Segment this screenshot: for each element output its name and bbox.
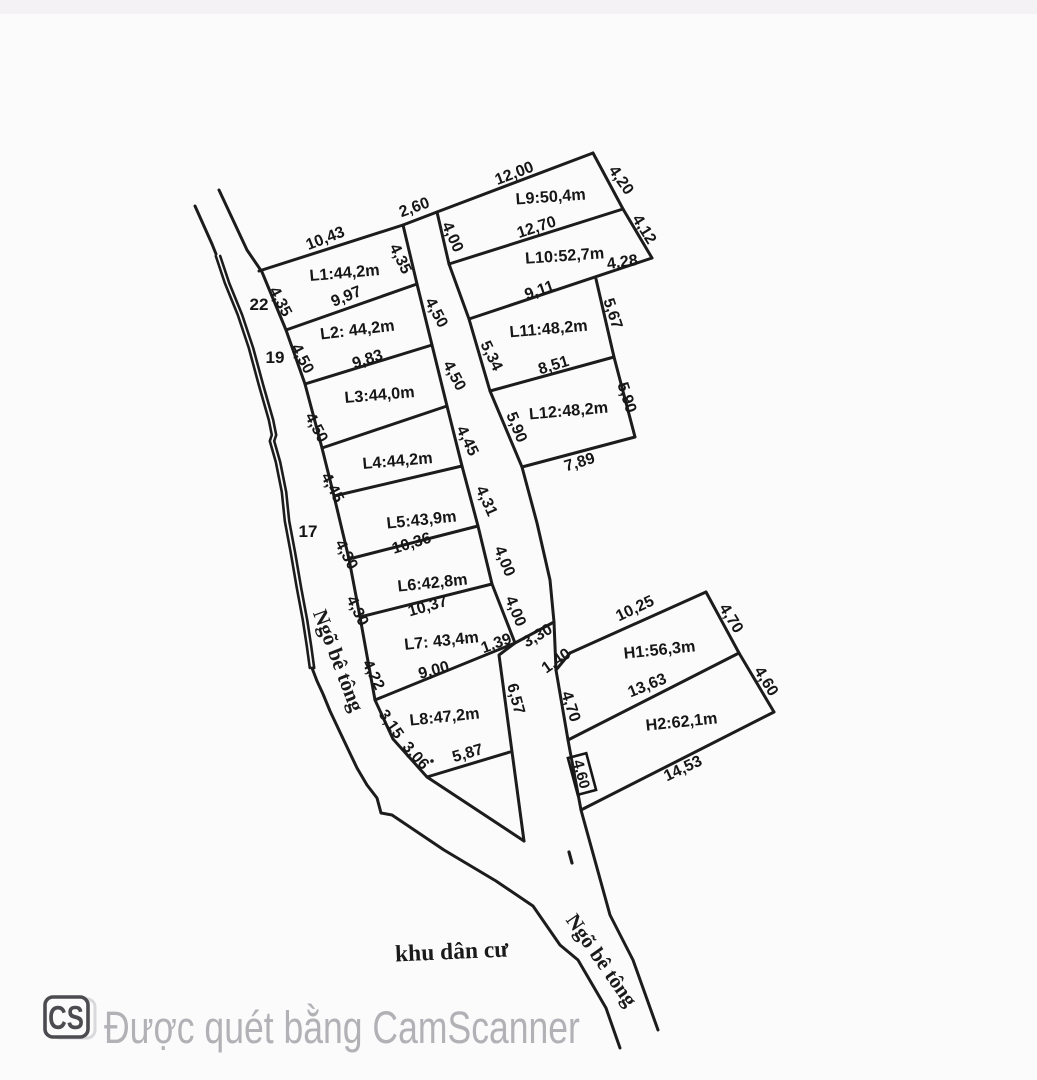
svg-text:Được quét bằng CamScanner: Được quét bằng CamScanner [104,1002,580,1053]
svg-text:22: 22 [250,295,269,314]
svg-text:19: 19 [266,348,285,367]
svg-text:khu dân cư: khu dân cư [394,937,509,968]
svg-text:17: 17 [299,522,318,541]
svg-text:CS: CS [48,1000,84,1037]
